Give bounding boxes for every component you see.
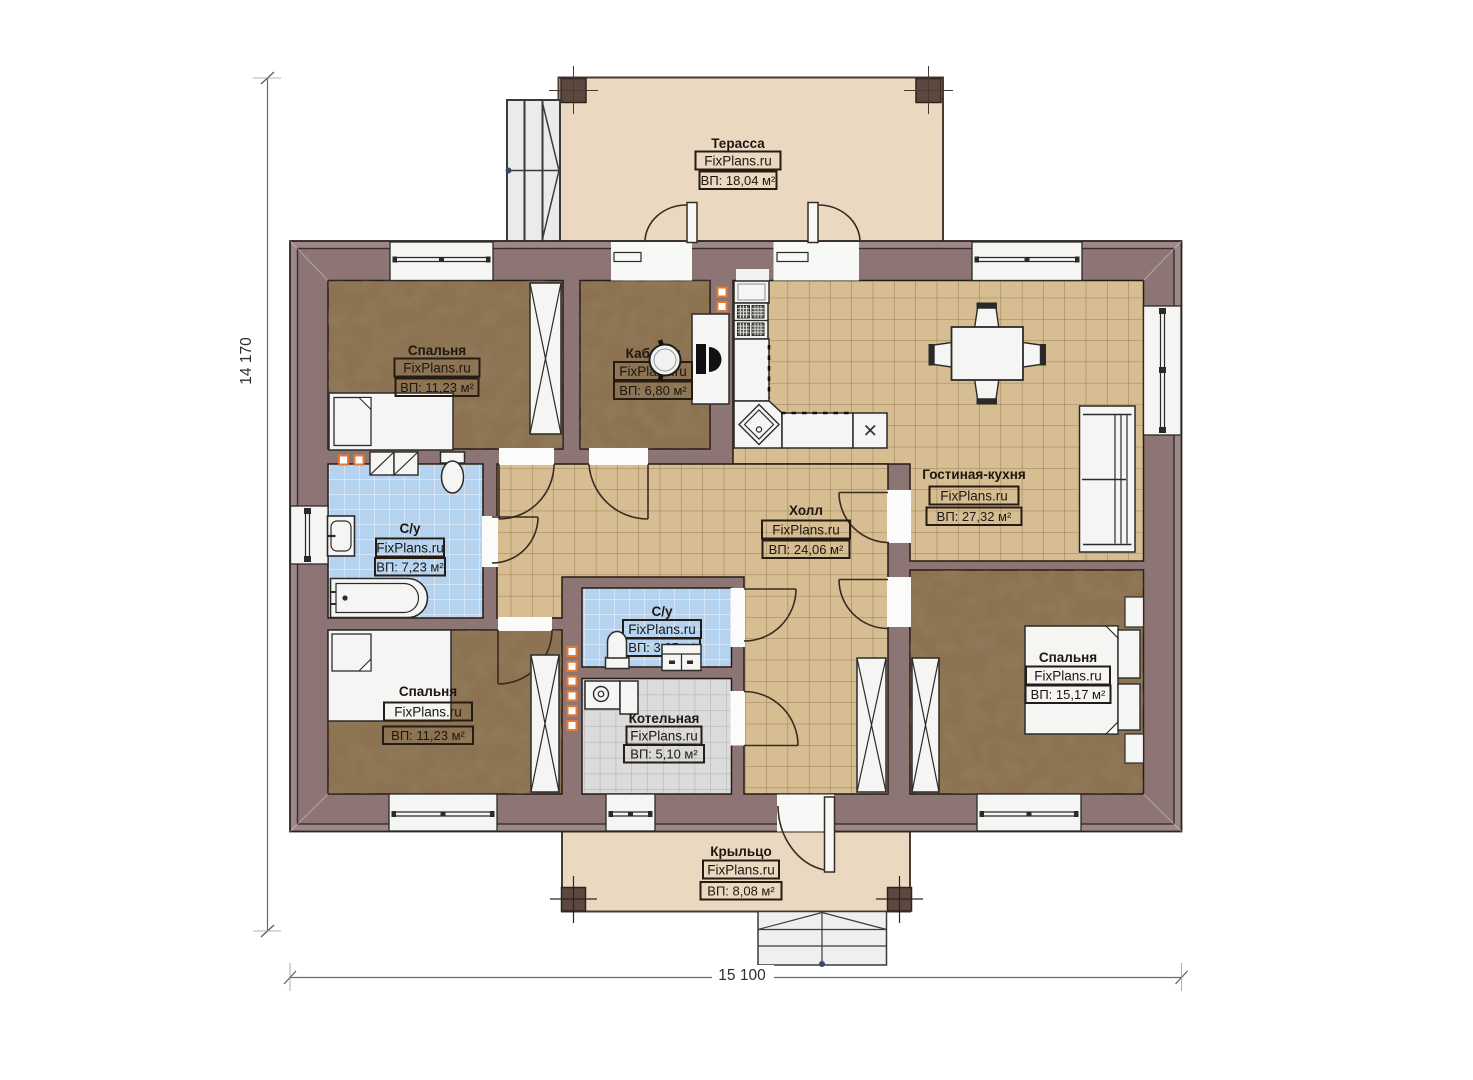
svg-text:ВП: 27,32 м²: ВП: 27,32 м² [937,509,1012,524]
svg-text:С/у: С/у [651,604,673,619]
svg-text:ВП: 6,80 м²: ВП: 6,80 м² [619,383,687,398]
svg-text:ВП: 18,04 м²: ВП: 18,04 м² [701,173,776,188]
svg-text:FixPlans.ru: FixPlans.ru [1034,669,1102,684]
svg-text:FixPlans.ru: FixPlans.ru [628,622,696,637]
svg-text:ВП: 11,23 м²: ВП: 11,23 м² [400,380,474,395]
svg-text:ВП: 11,23 м²: ВП: 11,23 м² [391,728,465,743]
svg-text:15 100: 15 100 [718,967,766,984]
svg-text:Спальня: Спальня [408,343,466,358]
svg-text:FixPlans.ru: FixPlans.ru [403,361,471,376]
svg-text:ВП: 8,08 м²: ВП: 8,08 м² [707,884,775,899]
svg-text:FixPlans.ru: FixPlans.ru [940,489,1008,504]
svg-text:14 170: 14 170 [238,337,255,385]
svg-text:Холл: Холл [789,503,823,518]
svg-text:ВП: 15,17 м²: ВП: 15,17 м² [1031,687,1106,702]
svg-text:Спальня: Спальня [1039,650,1097,665]
svg-text:ВП: 5,10 м²: ВП: 5,10 м² [630,747,698,762]
svg-text:Терасса: Терасса [711,136,765,151]
svg-text:С/у: С/у [399,521,421,536]
svg-text:FixPlans.ru: FixPlans.ru [394,705,462,720]
svg-text:FixPlans.ru: FixPlans.ru [707,863,775,878]
svg-text:FixPlans.ru: FixPlans.ru [704,154,772,169]
svg-text:Котельная: Котельная [629,711,700,726]
svg-text:Крыльцо: Крыльцо [710,844,771,859]
svg-text:FixPlans.ru: FixPlans.ru [772,523,840,538]
svg-text:ВП: 24,06 м²: ВП: 24,06 м² [769,542,844,557]
svg-text:FixPlans.ru: FixPlans.ru [630,729,698,744]
svg-text:ВП: 7,23 м²: ВП: 7,23 м² [376,560,444,575]
svg-text:FixPlans.ru: FixPlans.ru [376,541,444,556]
svg-text:Гостиная-кухня: Гостиная-кухня [922,467,1025,482]
svg-text:Спальня: Спальня [399,684,457,699]
